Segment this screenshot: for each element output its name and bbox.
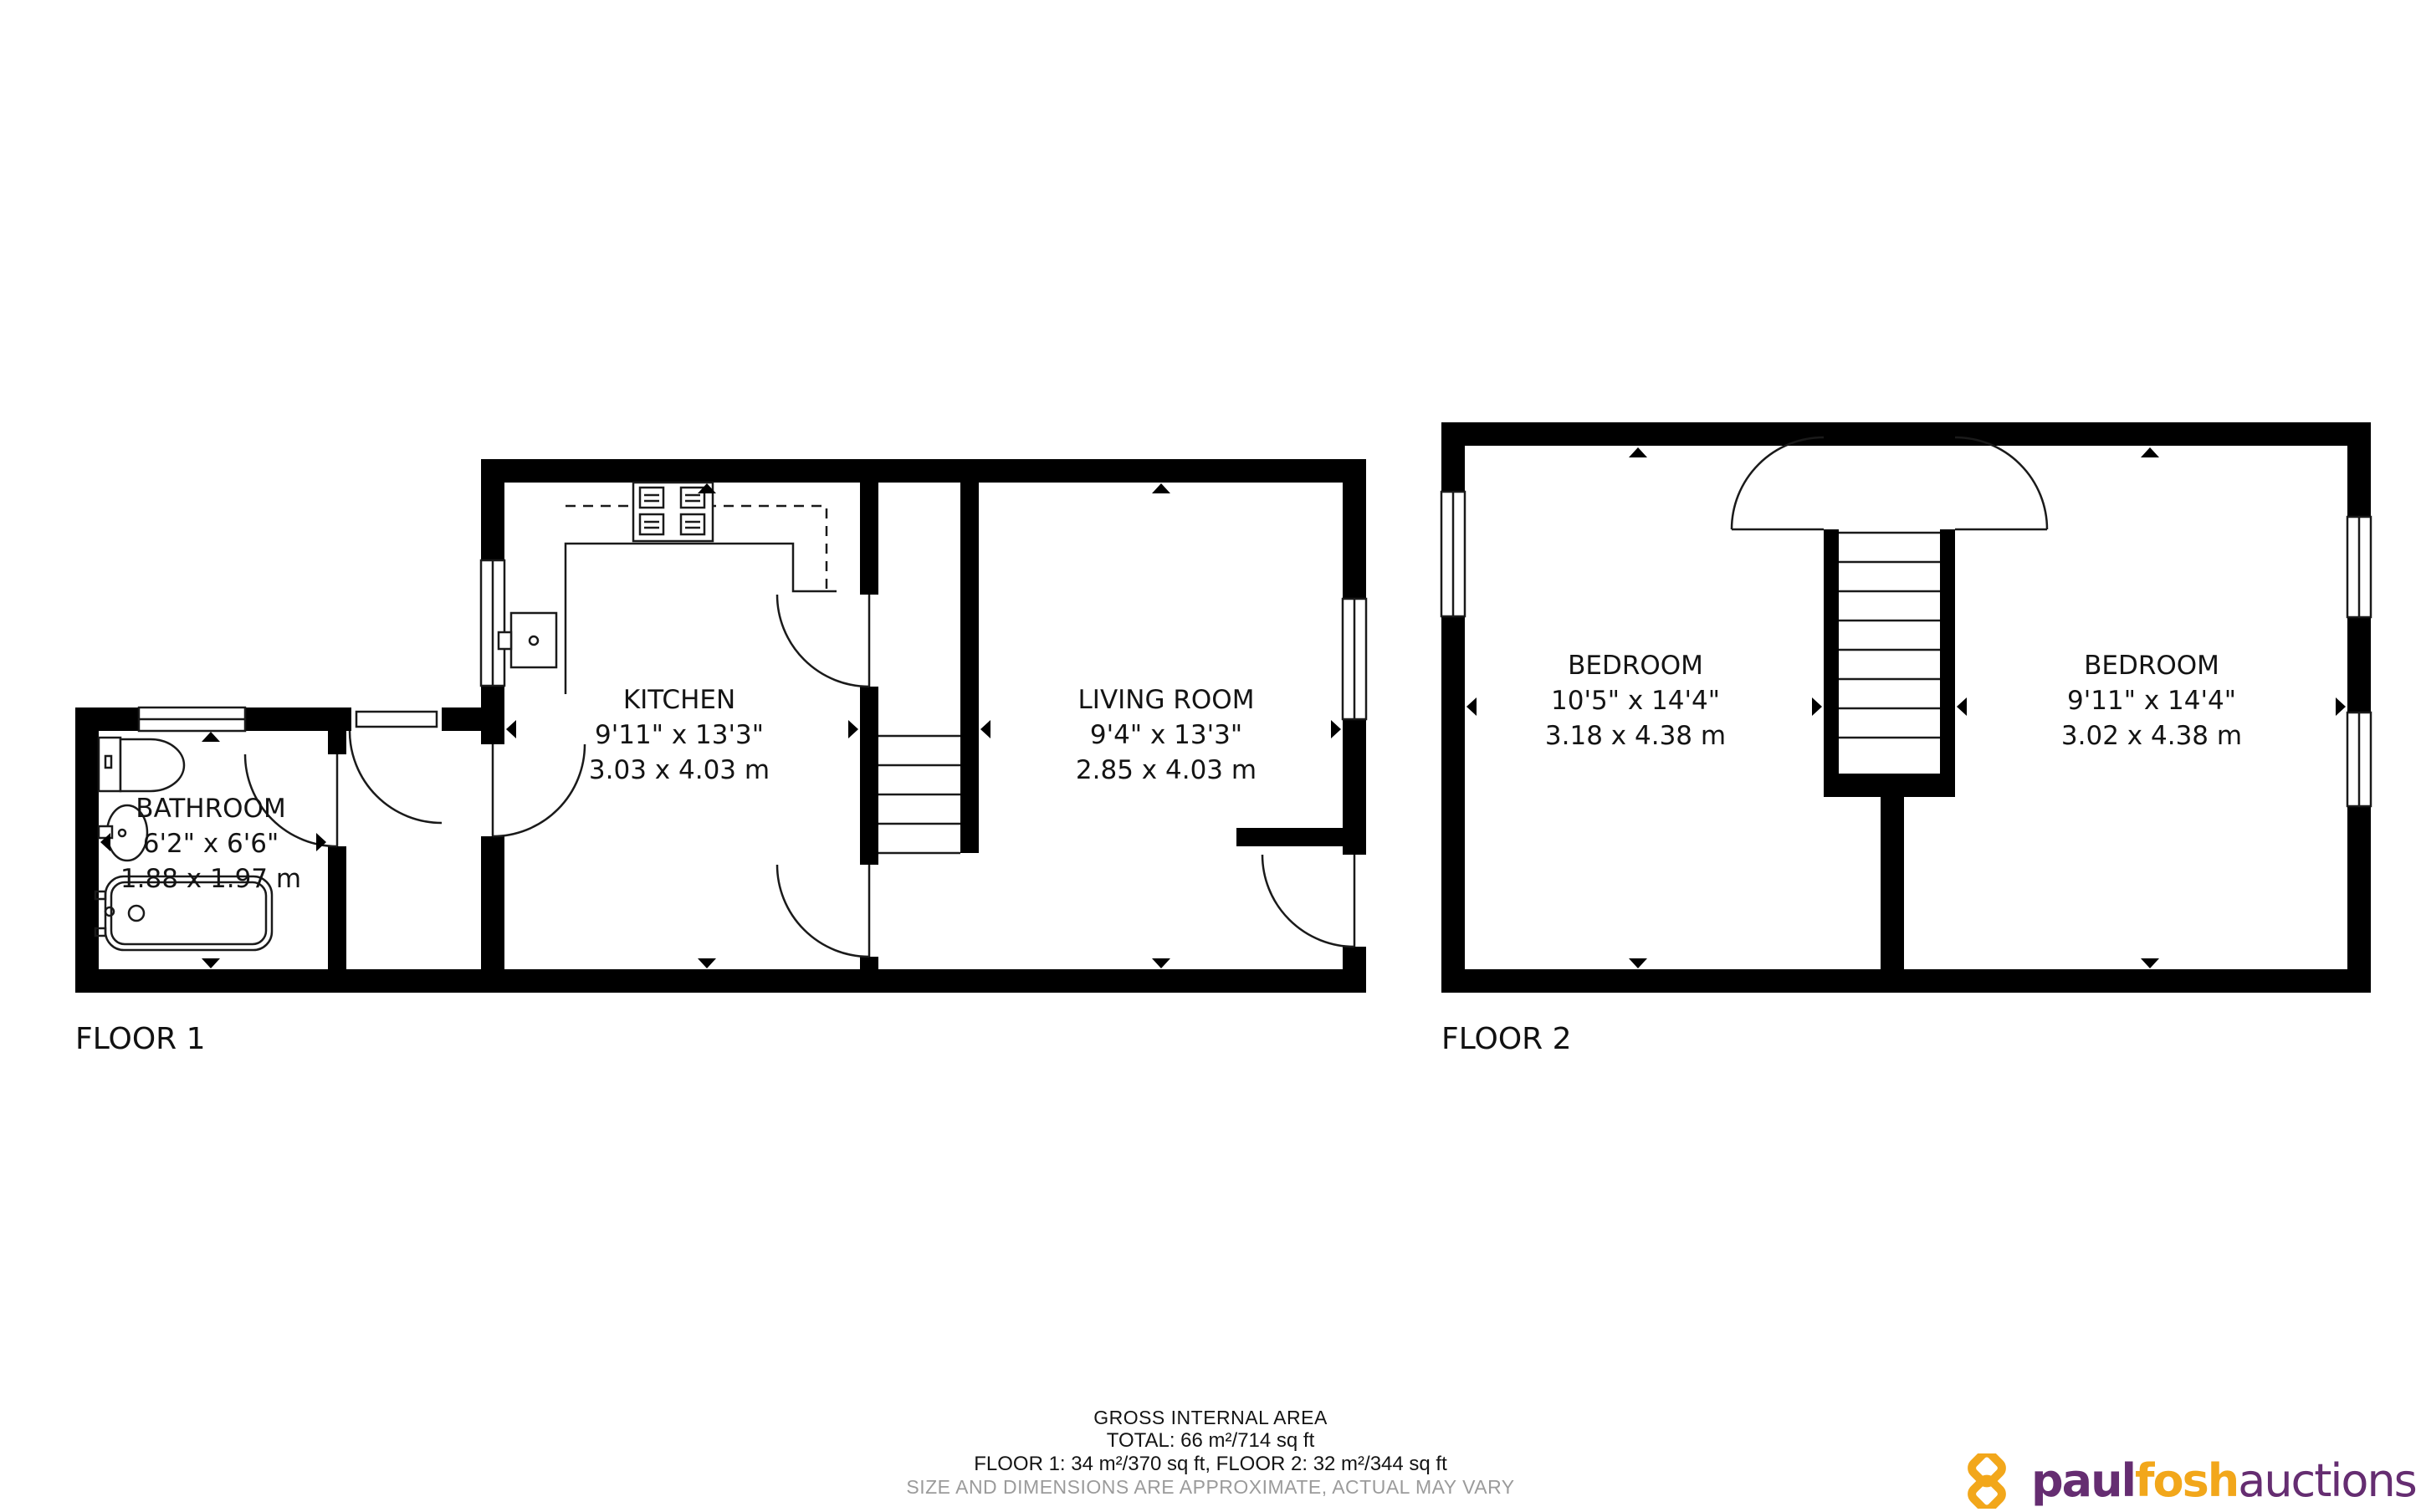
bedroom-right-window-lower-icon: [2347, 713, 2371, 806]
logo-auctions: auctions: [2238, 1454, 2416, 1507]
kitchen-name: KITCHEN: [589, 682, 770, 718]
logo-fosh: fosh: [2135, 1454, 2238, 1507]
kitchen-sink-icon: [499, 613, 556, 667]
bathroom-name: BATHROOM: [120, 791, 301, 826]
kitchen-lower-door-icon: [777, 865, 869, 957]
floor2-doors: [1732, 437, 2047, 529]
bathroom-dims-imperial: 6'2" x 6'6": [120, 826, 301, 861]
bedroom-right-name: BEDROOM: [2061, 648, 2242, 683]
floor2-title: FLOOR 2: [1441, 1022, 1572, 1056]
bedroom-left-label: BEDROOM 10'5" x 14'4" 3.18 x 4.38 m: [1545, 648, 1726, 753]
kitchen-window-icon: [481, 560, 504, 686]
paul-fosh-logo-icon: [1958, 1453, 2016, 1509]
bedroom-right-door-icon: [1955, 437, 2047, 529]
bedroom-left-dims-metric: 3.18 x 4.38 m: [1545, 718, 1726, 753]
entrance-door-leaf: [356, 712, 437, 727]
toilet-icon: [99, 738, 184, 791]
bedroom-left-name: BEDROOM: [1545, 648, 1726, 683]
floorplan-page: BATHROOM 6'2" x 6'6" 1.88 x 1.97 m KITCH…: [0, 0, 2421, 1512]
bedroom-right-window-upper-icon: [2347, 517, 2371, 617]
footer-total: TOTAL: 66 m²/714 sq ft: [0, 1429, 2421, 1453]
bathroom-dims-metric: 1.88 x 1.97 m: [120, 861, 301, 896]
living-room-window-icon: [1343, 599, 1366, 719]
living-room-name: LIVING ROOM: [1076, 682, 1257, 718]
floor1-title: FLOOR 1: [75, 1022, 206, 1056]
living-room-dims-imperial: 9'4" x 13'3": [1076, 718, 1257, 753]
kitchen-dims-metric: 3.03 x 4.03 m: [589, 753, 770, 788]
bathroom-window-icon: [139, 707, 245, 731]
bedroom-right-label: BEDROOM 9'11" x 14'4" 3.02 x 4.38 m: [2061, 648, 2242, 753]
living-room-dims-metric: 2.85 x 4.03 m: [1076, 753, 1257, 788]
living-room-label: LIVING ROOM 9'4" x 13'3" 2.85 x 4.03 m: [1076, 682, 1257, 788]
entrance-door-swing-icon: [350, 731, 442, 823]
kitchen-upper-door-icon: [777, 595, 869, 687]
bedroom-left-dims-imperial: 10'5" x 14'4": [1545, 683, 1726, 718]
floor2-stairs-icon: [1839, 533, 1940, 738]
paul-fosh-auctions-logo: paulfoshauctions: [1958, 1453, 2416, 1509]
logo-wordmark: paulfoshauctions: [2031, 1453, 2416, 1509]
kitchen-dims-imperial: 9'11" x 13'3": [589, 718, 770, 753]
footer-title: GROSS INTERNAL AREA: [0, 1407, 2421, 1429]
bedroom-left-door-icon: [1732, 437, 1824, 529]
bedroom-right-dims-imperial: 9'11" x 14'4": [2061, 683, 2242, 718]
bedroom-left-window-icon: [1441, 492, 1465, 616]
hall-to-kitchen-door-icon: [493, 744, 585, 836]
front-door-icon: [1262, 855, 1354, 947]
kitchen-label: KITCHEN 9'11" x 13'3" 3.03 x 4.03 m: [589, 682, 770, 788]
bedroom-right-dims-metric: 3.02 x 4.38 m: [2061, 718, 2242, 753]
bathroom-label: BATHROOM 6'2" x 6'6" 1.88 x 1.97 m: [120, 791, 301, 896]
logo-paul: paul: [2031, 1454, 2135, 1507]
floor1-stairs-icon: [878, 736, 960, 853]
